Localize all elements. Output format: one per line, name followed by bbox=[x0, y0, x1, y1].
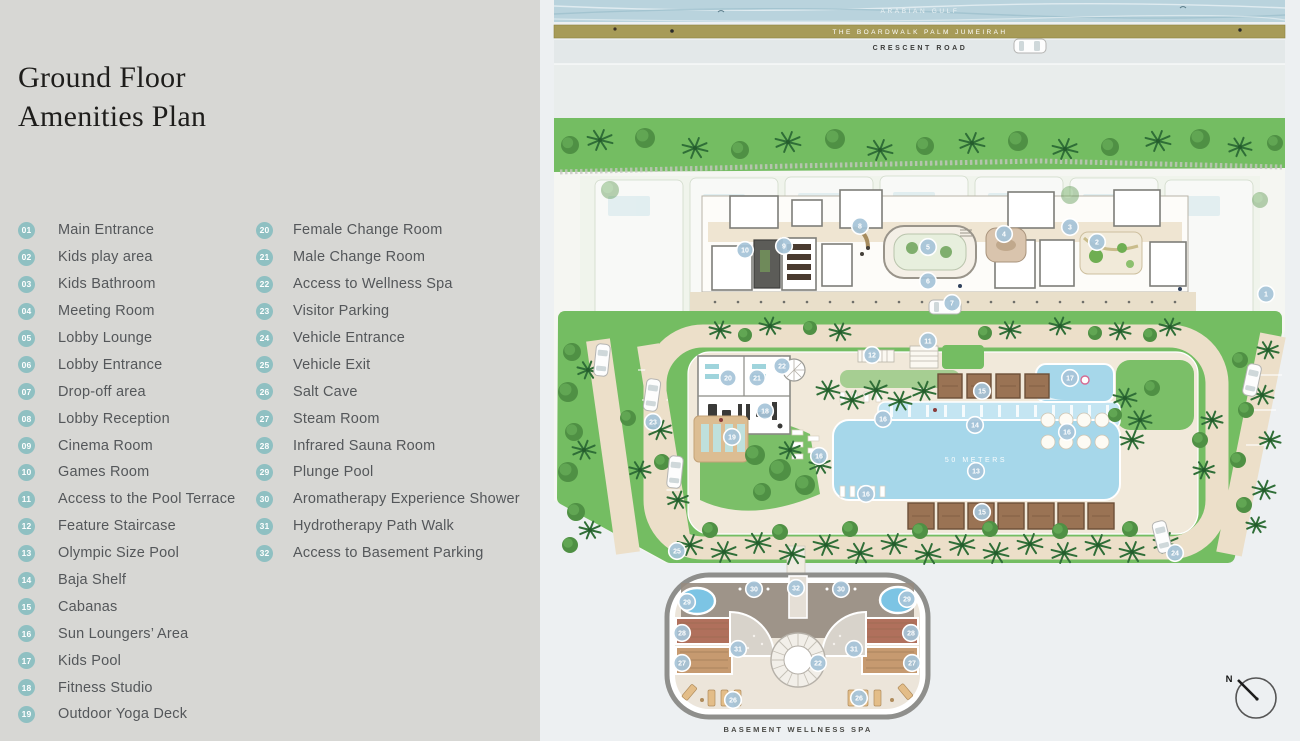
legend-item-label: Kids Bathroom bbox=[58, 276, 156, 292]
legend-item-label: Fitness Studio bbox=[58, 680, 153, 696]
legend-number-badge: 02 bbox=[18, 249, 35, 266]
north-compass: N bbox=[1226, 674, 1276, 718]
svg-text:2: 2 bbox=[1095, 240, 1099, 247]
plan-marker-23: 23 bbox=[645, 414, 662, 431]
bush-tree bbox=[561, 136, 579, 154]
legend-item-label: Kids Pool bbox=[58, 653, 121, 669]
svg-text:3: 3 bbox=[1068, 225, 1072, 232]
bush-tree bbox=[745, 445, 765, 465]
plan-marker-28: 28 bbox=[903, 625, 920, 642]
plan-marker-7: 7 bbox=[944, 295, 961, 312]
legend-number-badge: 25 bbox=[256, 356, 273, 373]
legend-number-badge: 04 bbox=[18, 303, 35, 320]
plan-marker-22: 22 bbox=[774, 358, 791, 375]
svg-text:27: 27 bbox=[908, 661, 916, 668]
legend-item-label: Steam Room bbox=[293, 411, 380, 427]
svg-text:13: 13 bbox=[972, 469, 980, 476]
legend-item-label: Feature Staircase bbox=[58, 518, 176, 534]
legend-item: 04Meeting Room bbox=[18, 298, 235, 325]
legend-item: 16Sun Loungers’ Area bbox=[18, 620, 235, 647]
legend-number-badge: 29 bbox=[256, 464, 273, 481]
plan-marker-31: 31 bbox=[730, 641, 747, 658]
legend-item-label: Vehicle Entrance bbox=[293, 330, 405, 346]
bush-tree bbox=[702, 522, 718, 538]
legend-item: 18Fitness Studio bbox=[18, 674, 235, 701]
plan-marker-6: 6 bbox=[920, 273, 937, 290]
bush-tree bbox=[1088, 326, 1102, 340]
svg-text:15: 15 bbox=[978, 510, 986, 517]
legend-item: 22Access to Wellness Spa bbox=[256, 271, 520, 298]
svg-text:24: 24 bbox=[1171, 551, 1179, 558]
plan-marker-8: 8 bbox=[852, 218, 869, 235]
legend-item-label: Access to the Pool Terrace bbox=[58, 491, 235, 507]
plan-marker-5: 5 bbox=[920, 239, 937, 256]
legend-number-badge: 09 bbox=[18, 437, 35, 454]
plan-marker-26: 26 bbox=[725, 692, 742, 709]
bush-tree bbox=[982, 521, 998, 537]
svg-text:27: 27 bbox=[678, 661, 686, 668]
svg-text:19: 19 bbox=[728, 435, 736, 442]
plan-marker-18: 18 bbox=[757, 403, 774, 420]
legend-item-label: Visitor Parking bbox=[293, 303, 389, 319]
svg-text:29: 29 bbox=[903, 597, 911, 604]
legend-item: 24Vehicle Entrance bbox=[256, 325, 520, 352]
road-label: CRESCENT ROAD bbox=[873, 45, 968, 52]
bush-tree bbox=[769, 459, 791, 481]
legend-number-badge: 10 bbox=[18, 464, 35, 481]
svg-text:22: 22 bbox=[814, 661, 822, 668]
legend-item-label: Lobby Lounge bbox=[58, 330, 152, 346]
legend-item-label: Baja Shelf bbox=[58, 572, 126, 588]
page-title: Ground Floor Amenities Plan bbox=[18, 58, 206, 136]
legend-number-badge: 19 bbox=[18, 706, 35, 723]
svg-text:16: 16 bbox=[862, 492, 870, 499]
svg-text:1: 1 bbox=[1264, 292, 1268, 299]
bush-tree bbox=[1190, 129, 1210, 149]
legend-number-badge: 03 bbox=[18, 276, 35, 293]
plan-marker-2: 2 bbox=[1089, 234, 1106, 251]
bush-tree bbox=[1236, 497, 1252, 513]
svg-text:16: 16 bbox=[1063, 430, 1071, 437]
legend-item: 27Steam Room bbox=[256, 405, 520, 432]
palm-tree bbox=[1246, 517, 1265, 532]
svg-text:30: 30 bbox=[750, 587, 758, 594]
plan-marker-26: 26 bbox=[851, 690, 868, 707]
legend-item-label: Kids play area bbox=[58, 249, 153, 265]
bush-tree bbox=[562, 537, 578, 553]
legend-item: 28Infrared Sauna Room bbox=[256, 432, 520, 459]
bush-tree bbox=[558, 382, 578, 402]
svg-text:28: 28 bbox=[907, 631, 915, 638]
bush-tree bbox=[1252, 192, 1268, 208]
plan-marker-27: 27 bbox=[674, 655, 691, 672]
legend-number-badge: 13 bbox=[18, 545, 35, 562]
legend-item: 06Lobby Entrance bbox=[18, 351, 235, 378]
plan-marker-20: 20 bbox=[720, 370, 737, 387]
plan-marker-16: 16 bbox=[858, 486, 875, 503]
legend-column-1: 01Main Entrance02Kids play area03Kids Ba… bbox=[18, 217, 235, 728]
plan-marker-15: 15 bbox=[974, 383, 991, 400]
legend-item: 25Vehicle Exit bbox=[256, 351, 520, 378]
main-building bbox=[702, 190, 1188, 292]
legend-item: 20Female Change Room bbox=[256, 217, 520, 244]
plan-marker-14: 14 bbox=[967, 417, 984, 434]
bush-tree bbox=[825, 129, 845, 149]
legend-number-badge: 27 bbox=[256, 410, 273, 427]
legend-column-2: 20Female Change Room21Male Change Room22… bbox=[256, 217, 520, 567]
legend-item-label: Main Entrance bbox=[58, 222, 154, 238]
plan-marker-29: 29 bbox=[899, 591, 916, 608]
legend-number-badge: 16 bbox=[18, 625, 35, 642]
bush-tree bbox=[795, 475, 815, 495]
legend-number-badge: 14 bbox=[18, 572, 35, 589]
plan-marker-11: 11 bbox=[920, 333, 937, 350]
bush-tree bbox=[1108, 408, 1122, 422]
bush-tree bbox=[731, 141, 749, 159]
site-plan-canvas: ARABIAN GULF THE BOARDWALK PALM JUMEIRAH… bbox=[540, 0, 1300, 741]
legend-item-label: Lobby Entrance bbox=[58, 357, 162, 373]
svg-text:10: 10 bbox=[741, 248, 749, 255]
svg-text:31: 31 bbox=[734, 647, 742, 654]
svg-text:15: 15 bbox=[978, 389, 986, 396]
bush-tree bbox=[1122, 521, 1138, 537]
svg-text:16: 16 bbox=[815, 454, 823, 461]
svg-text:31: 31 bbox=[850, 647, 858, 654]
bush-tree bbox=[1008, 131, 1028, 151]
plan-marker-15: 15 bbox=[974, 504, 991, 521]
legend-number-badge: 20 bbox=[256, 222, 273, 239]
car bbox=[1014, 39, 1046, 53]
svg-text:7: 7 bbox=[950, 301, 954, 308]
legend-number-badge: 24 bbox=[256, 330, 273, 347]
legend-item-label: Plunge Pool bbox=[293, 464, 373, 480]
page-title-line1: Ground Floor bbox=[18, 58, 206, 97]
svg-text:32: 32 bbox=[792, 586, 800, 593]
legend-item-label: Outdoor Yoga Deck bbox=[58, 706, 187, 722]
bush-tree bbox=[1267, 135, 1283, 151]
legend-item: 21Male Change Room bbox=[256, 244, 520, 271]
legend-item-label: Access to Basement Parking bbox=[293, 545, 484, 561]
svg-text:16: 16 bbox=[879, 417, 887, 424]
boardwalk: THE BOARDWALK PALM JUMEIRAH bbox=[554, 25, 1285, 38]
legend-number-badge: 17 bbox=[18, 652, 35, 669]
legend-item: 05Lobby Lounge bbox=[18, 325, 235, 352]
legend-number-badge: 23 bbox=[256, 303, 273, 320]
legend-item-label: Access to Wellness Spa bbox=[293, 276, 453, 292]
bush-tree bbox=[1052, 523, 1068, 539]
plan-marker-31: 31 bbox=[846, 641, 863, 658]
plan-marker-16: 16 bbox=[875, 411, 892, 428]
legend-item: 19Outdoor Yoga Deck bbox=[18, 701, 235, 728]
plan-marker-29: 29 bbox=[679, 594, 696, 611]
plan-marker-30: 30 bbox=[833, 581, 850, 598]
legend-item: 09Cinema Room bbox=[18, 432, 235, 459]
legend-item-label: Aromatherapy Experience Shower bbox=[293, 491, 520, 507]
plan-marker-3: 3 bbox=[1062, 219, 1079, 236]
plan-marker-24: 24 bbox=[1167, 545, 1184, 562]
svg-text:21: 21 bbox=[753, 376, 761, 383]
site-plan: ARABIAN GULF THE BOARDWALK PALM JUMEIRAH… bbox=[540, 0, 1300, 741]
spa-label: BASEMENT WELLNESS SPA bbox=[724, 725, 873, 734]
bush-tree bbox=[567, 503, 585, 521]
legend-item-label: Hydrotherapy Path Walk bbox=[293, 518, 454, 534]
legend-number-badge: 06 bbox=[18, 356, 35, 373]
bush-tree bbox=[1238, 402, 1254, 418]
svg-text:9: 9 bbox=[782, 244, 786, 251]
plan-marker-1: 1 bbox=[1258, 286, 1275, 303]
svg-text:25: 25 bbox=[673, 549, 681, 556]
plan-marker-17: 17 bbox=[1062, 370, 1079, 387]
bush-tree bbox=[738, 328, 752, 342]
svg-text:17: 17 bbox=[1066, 376, 1074, 383]
svg-text:4: 4 bbox=[1002, 232, 1006, 239]
legend-number-badge: 26 bbox=[256, 383, 273, 400]
legend-item: 23Visitor Parking bbox=[256, 298, 520, 325]
legend-item: 13Olympic Size Pool bbox=[18, 540, 235, 567]
legend-item-label: Olympic Size Pool bbox=[58, 545, 179, 561]
plan-marker-27: 27 bbox=[904, 655, 921, 672]
legend-item: 30Aromatherapy Experience Shower bbox=[256, 486, 520, 513]
legend-item-label: Vehicle Exit bbox=[293, 357, 370, 373]
legend-item: 12Feature Staircase bbox=[18, 513, 235, 540]
plan-marker-22: 22 bbox=[810, 655, 827, 672]
legend-item: 17Kids Pool bbox=[18, 647, 235, 674]
svg-text:14: 14 bbox=[971, 423, 979, 430]
legend-item-label: Female Change Room bbox=[293, 222, 442, 238]
plan-marker-12: 12 bbox=[864, 347, 881, 364]
legend-item: 07Drop-off area bbox=[18, 378, 235, 405]
legend-number-badge: 11 bbox=[18, 491, 35, 508]
svg-text:28: 28 bbox=[678, 631, 686, 638]
legend-number-badge: 07 bbox=[18, 383, 35, 400]
bush-tree bbox=[1101, 138, 1119, 156]
boardwalk-label: THE BOARDWALK PALM JUMEIRAH bbox=[833, 29, 1008, 36]
svg-text:8: 8 bbox=[858, 224, 862, 231]
legend-item-label: Meeting Room bbox=[58, 303, 155, 319]
bush-tree bbox=[1192, 432, 1208, 448]
legend-number-badge: 31 bbox=[256, 518, 273, 535]
plan-marker-4: 4 bbox=[996, 226, 1013, 243]
legend-number-badge: 12 bbox=[18, 518, 35, 535]
legend-item: 03Kids Bathroom bbox=[18, 271, 235, 298]
legend-item: 29Plunge Pool bbox=[256, 459, 520, 486]
plan-marker-10: 10 bbox=[737, 242, 754, 259]
bush-tree bbox=[654, 454, 670, 470]
legend-number-badge: 08 bbox=[18, 410, 35, 427]
legend-number-badge: 28 bbox=[256, 437, 273, 454]
plan-marker-25: 25 bbox=[669, 543, 686, 560]
legend-item-label: Cinema Room bbox=[58, 438, 153, 454]
legend-item: 10Games Room bbox=[18, 459, 235, 486]
svg-text:11: 11 bbox=[924, 339, 932, 346]
bush-tree bbox=[1061, 186, 1079, 204]
car bbox=[666, 455, 683, 488]
svg-text:26: 26 bbox=[729, 698, 737, 705]
page-title-line2: Amenities Plan bbox=[18, 97, 206, 136]
legend-number-badge: 05 bbox=[18, 330, 35, 347]
car bbox=[593, 343, 610, 376]
legend-item: 11Access to the Pool Terrace bbox=[18, 486, 235, 513]
bush-tree bbox=[772, 524, 788, 540]
bush-tree bbox=[563, 343, 581, 361]
legend-item: 08Lobby Reception bbox=[18, 405, 235, 432]
legend-item: 01Main Entrance bbox=[18, 217, 235, 244]
north-label: N bbox=[1226, 674, 1233, 685]
svg-text:29: 29 bbox=[683, 600, 691, 607]
bush-tree bbox=[842, 521, 858, 537]
legend-item-label: Drop-off area bbox=[58, 384, 146, 400]
legend-item-label: Male Change Room bbox=[293, 249, 425, 265]
legend-item-label: Infrared Sauna Room bbox=[293, 438, 435, 454]
arabian-gulf-water: ARABIAN GULF bbox=[554, 0, 1285, 22]
bush-tree bbox=[803, 321, 817, 335]
plan-marker-19: 19 bbox=[724, 429, 741, 446]
legend-number-badge: 18 bbox=[18, 679, 35, 696]
bush-tree bbox=[1232, 352, 1248, 368]
legend-item-label: Lobby Reception bbox=[58, 411, 170, 427]
bush-tree bbox=[1144, 380, 1160, 396]
basement-wellness-spa: BASEMENT WELLNESS SPA bbox=[667, 575, 928, 734]
legend-number-badge: 22 bbox=[256, 276, 273, 293]
gulf-label: ARABIAN GULF bbox=[881, 8, 960, 15]
legend-item-label: Sun Loungers’ Area bbox=[58, 626, 188, 642]
plan-marker-9: 9 bbox=[776, 238, 793, 255]
legend-number-badge: 30 bbox=[256, 491, 273, 508]
svg-text:6: 6 bbox=[926, 279, 930, 286]
bush-tree bbox=[916, 137, 934, 155]
svg-text:30: 30 bbox=[837, 587, 845, 594]
bush-tree bbox=[620, 410, 636, 426]
legend-item: 31Hydrotherapy Path Walk bbox=[256, 513, 520, 540]
legend-item: 32Access to Basement Parking bbox=[256, 540, 520, 567]
plan-marker-16: 16 bbox=[811, 448, 828, 465]
legend-item: 15Cabanas bbox=[18, 593, 235, 620]
bush-tree bbox=[565, 423, 583, 441]
bush-tree bbox=[978, 326, 992, 340]
plan-marker-28: 28 bbox=[674, 625, 691, 642]
legend-panel: Ground Floor Amenities Plan 01Main Entra… bbox=[0, 0, 540, 741]
svg-text:12: 12 bbox=[868, 353, 876, 360]
legend-item-label: Cabanas bbox=[58, 599, 117, 615]
legend-item: 02Kids play area bbox=[18, 244, 235, 271]
svg-text:26: 26 bbox=[855, 696, 863, 703]
svg-text:5: 5 bbox=[926, 245, 930, 252]
svg-text:22: 22 bbox=[778, 364, 786, 371]
bush-tree bbox=[601, 181, 619, 199]
svg-text:23: 23 bbox=[649, 420, 657, 427]
bush-tree bbox=[1143, 328, 1157, 342]
plan-marker-16: 16 bbox=[1059, 424, 1076, 441]
bush-tree bbox=[558, 462, 578, 482]
legend-number-badge: 01 bbox=[18, 222, 35, 239]
plan-marker-13: 13 bbox=[968, 463, 985, 480]
bush-tree bbox=[753, 483, 771, 501]
plan-marker-30: 30 bbox=[746, 581, 763, 598]
plan-marker-21: 21 bbox=[749, 370, 766, 387]
crescent-road: CRESCENT ROAD bbox=[554, 40, 1285, 118]
plan-marker-32: 32 bbox=[788, 580, 805, 597]
legend-item: 14Baja Shelf bbox=[18, 567, 235, 594]
legend-item-label: Salt Cave bbox=[293, 384, 358, 400]
bush-tree bbox=[1230, 452, 1246, 468]
bush-tree bbox=[635, 128, 655, 148]
svg-text:20: 20 bbox=[724, 376, 732, 383]
bush-tree bbox=[912, 523, 928, 539]
legend-number-badge: 32 bbox=[256, 545, 273, 562]
legend-item: 26Salt Cave bbox=[256, 378, 520, 405]
legend-item-label: Games Room bbox=[58, 464, 149, 480]
svg-text:18: 18 bbox=[761, 409, 769, 416]
legend-number-badge: 21 bbox=[256, 249, 273, 266]
legend-number-badge: 15 bbox=[18, 598, 35, 615]
